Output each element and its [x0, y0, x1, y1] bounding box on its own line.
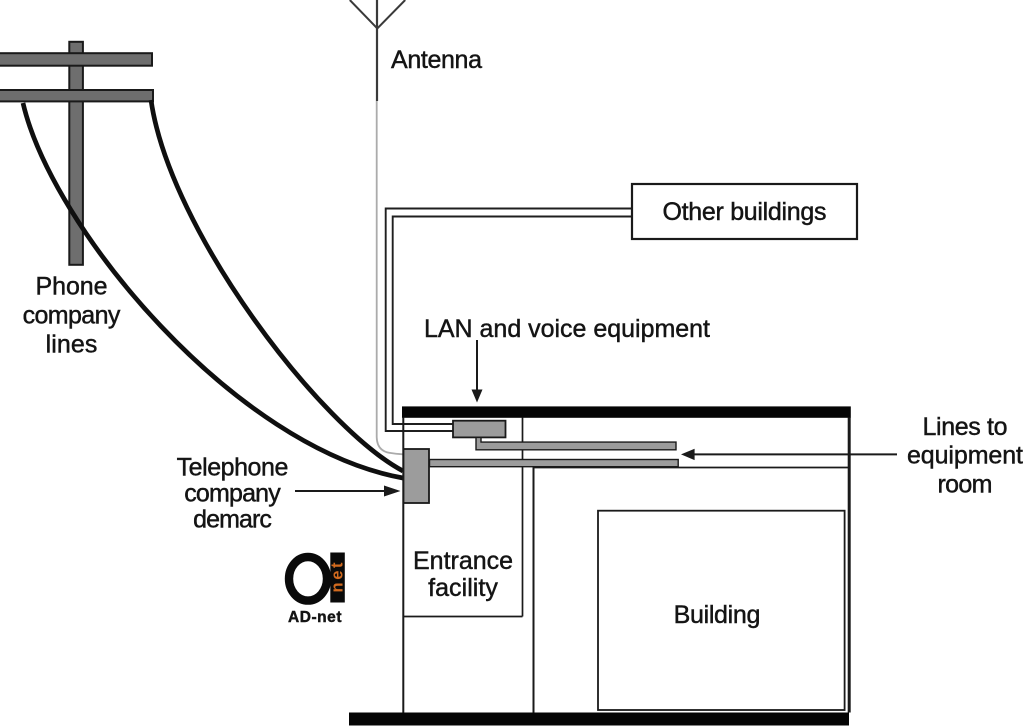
svg-text:Other buildings: Other buildings [663, 198, 827, 226]
svg-text:lines: lines [46, 330, 98, 358]
svg-text:demarc: demarc [193, 506, 272, 534]
svg-text:company: company [184, 480, 281, 508]
svg-text:Antenna: Antenna [391, 46, 482, 74]
svg-text:Telephone: Telephone [177, 454, 289, 482]
svg-text:company: company [23, 301, 121, 329]
svg-text:LAN and voice equipment: LAN and voice equipment [424, 315, 710, 343]
svg-text:AD-net: AD-net [288, 609, 342, 626]
svg-text:Phone: Phone [36, 272, 108, 300]
svg-text:Lines to: Lines to [923, 413, 1008, 441]
svg-text:net: net [329, 562, 347, 593]
svg-text:Building: Building [674, 601, 761, 629]
svg-text:equipment: equipment [907, 442, 1023, 470]
svg-text:room: room [938, 471, 993, 499]
svg-text:facility: facility [428, 574, 498, 602]
svg-text:Entrance: Entrance [413, 547, 513, 575]
